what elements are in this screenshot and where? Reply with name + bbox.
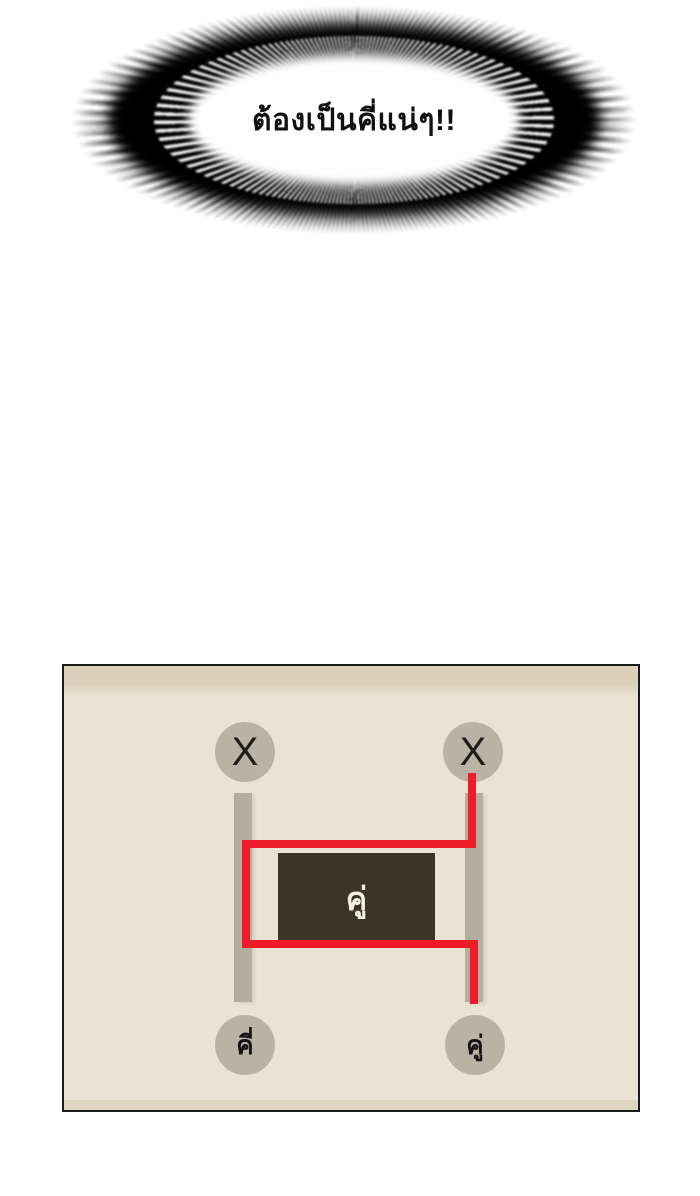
right-rail: [465, 793, 483, 1002]
start-node-right: X: [443, 722, 503, 782]
start-node-left-label: X: [232, 732, 259, 772]
result-node-even: คู่: [445, 1015, 505, 1075]
hidden-even-box: คู่: [278, 853, 435, 945]
result-node-odd: คี่: [215, 1015, 275, 1075]
hidden-even-box-label: คู่: [346, 883, 367, 915]
result-node-odd-label: คี่: [236, 1032, 253, 1058]
left-rail: [234, 793, 252, 1002]
start-node-right-label: X: [460, 732, 487, 772]
shout-bubble: ต้องเป็นคี่แน่ๆ!!: [68, 4, 640, 236]
panel-bottom-shading: [64, 1100, 638, 1110]
shout-text: ต้องเป็นคี่แน่ๆ!!: [68, 4, 640, 236]
panel-top-shading: [64, 666, 638, 696]
result-node-even-label: คู่: [466, 1032, 483, 1058]
ladder-diagram-panel: X X คู่ คี่ คู่: [62, 664, 640, 1112]
start-node-left: X: [215, 722, 275, 782]
